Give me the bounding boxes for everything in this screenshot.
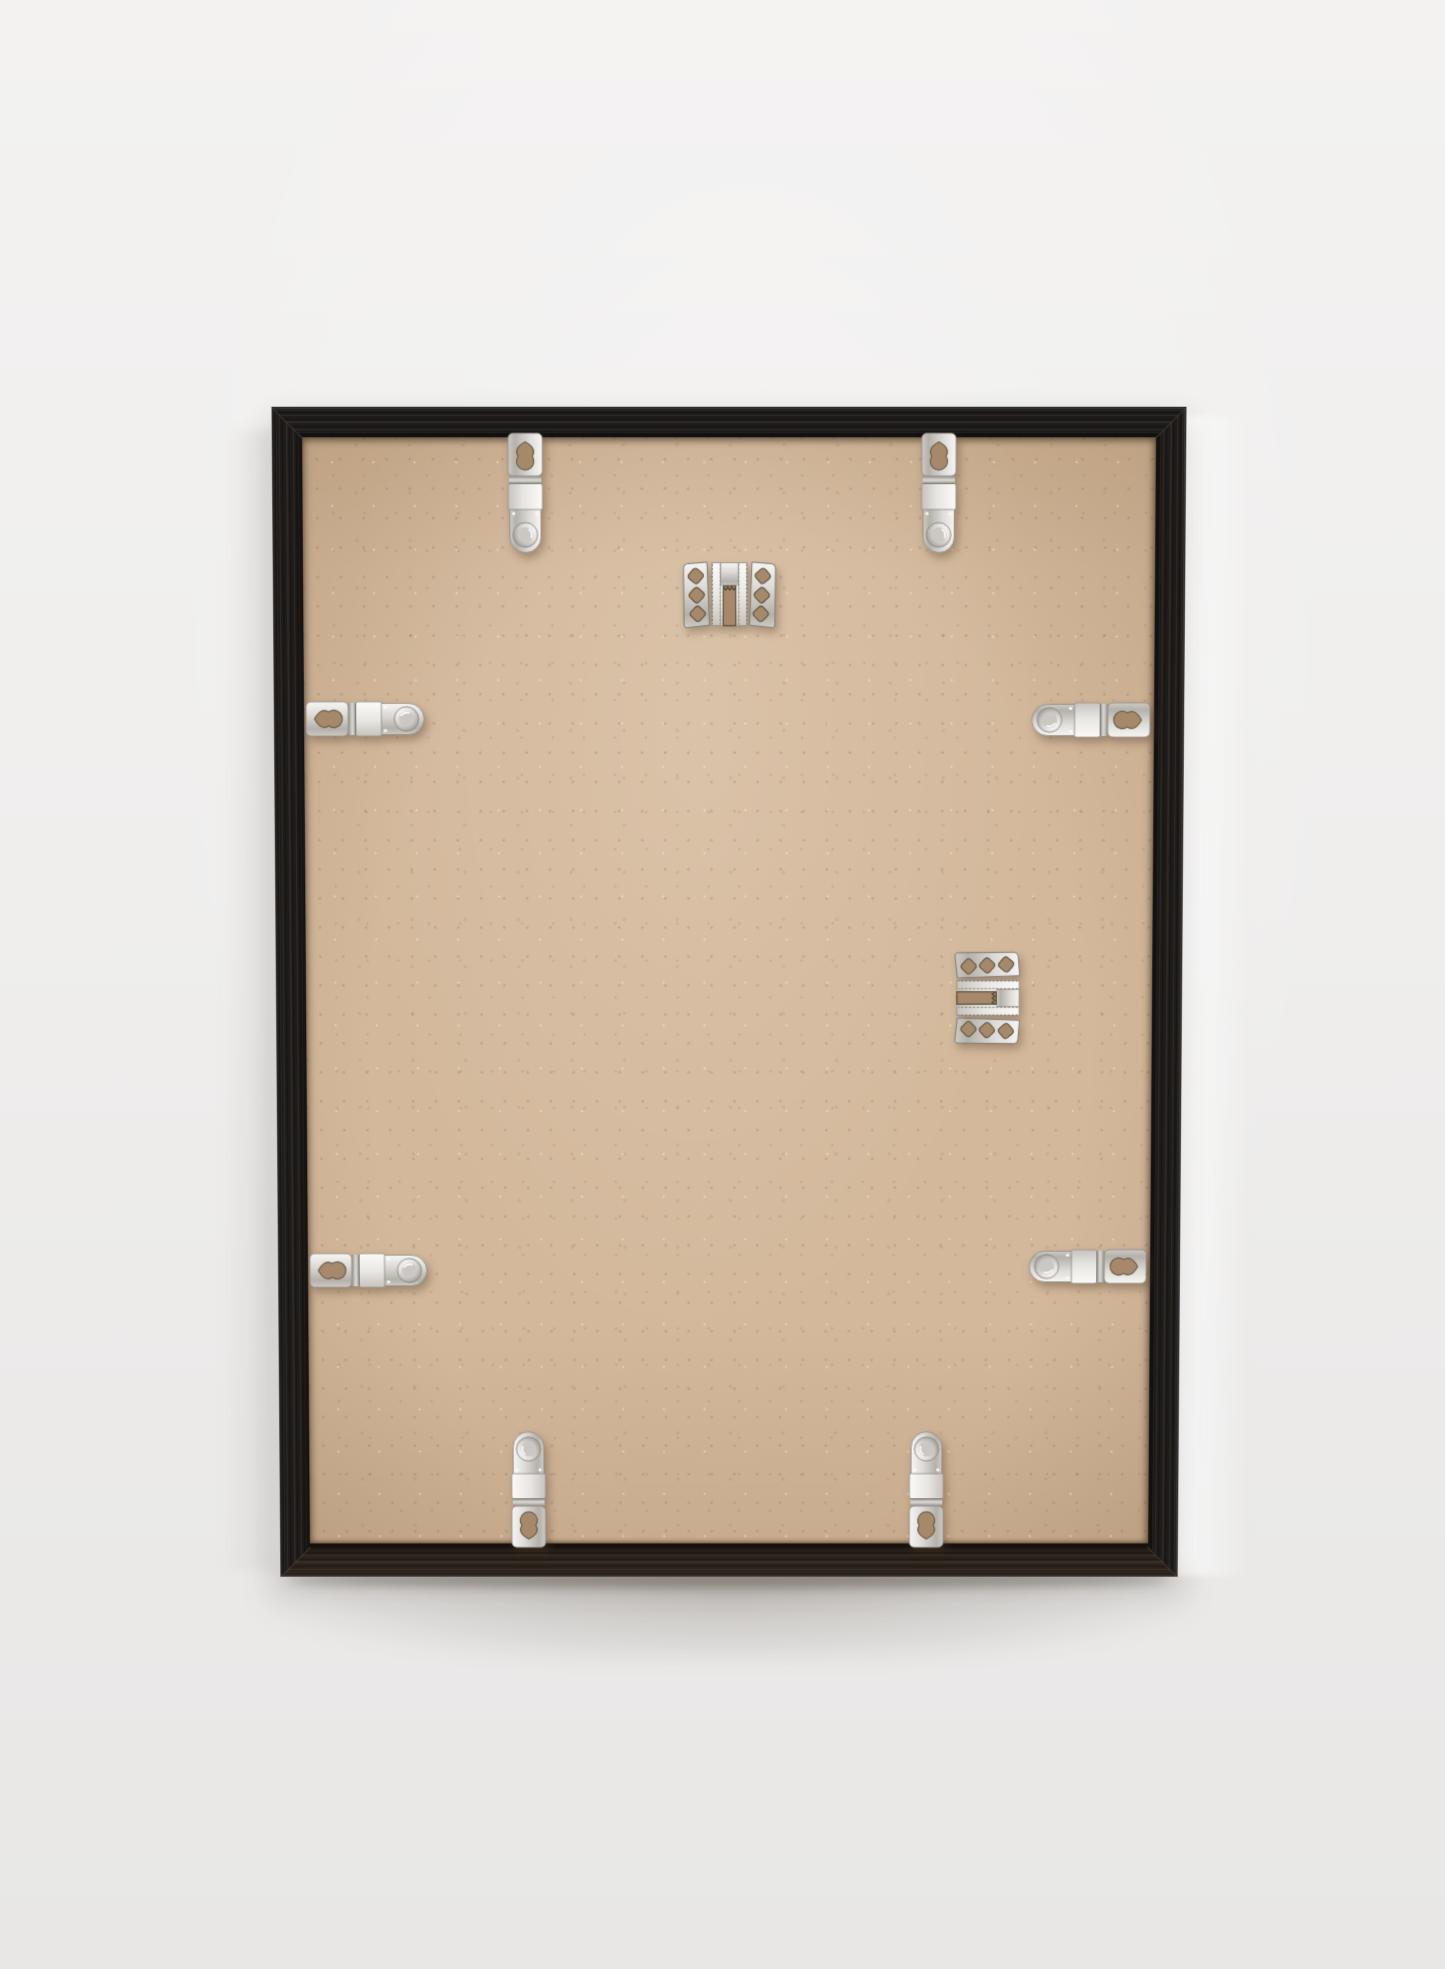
studio-backdrop (0, 0, 1445, 1969)
frame-edge-top (272, 407, 1187, 438)
retaining-clip-bottom-right (865, 1469, 988, 1506)
retaining-clip-top-left (463, 476, 588, 515)
retaining-clip-right-upper (1026, 701, 1151, 739)
retaining-clip-right-lower (1024, 1248, 1148, 1286)
rim-light-right (1176, 416, 1250, 1576)
retaining-clip-left-lower (309, 1252, 433, 1290)
frame-edge-bottom (280, 1547, 1178, 1576)
wall-shade-left (212, 430, 276, 1570)
hanging-bracket-top-center (677, 559, 783, 630)
hanging-bracket-middle-right (935, 963, 1040, 1033)
backing-bottom-gap (310, 1543, 1148, 1547)
retaining-clip-bottom-left (467, 1469, 590, 1506)
retaining-clip-left-upper (305, 700, 430, 738)
picture-frame-back (272, 407, 1187, 1577)
retaining-clip-top-right (876, 476, 1001, 515)
